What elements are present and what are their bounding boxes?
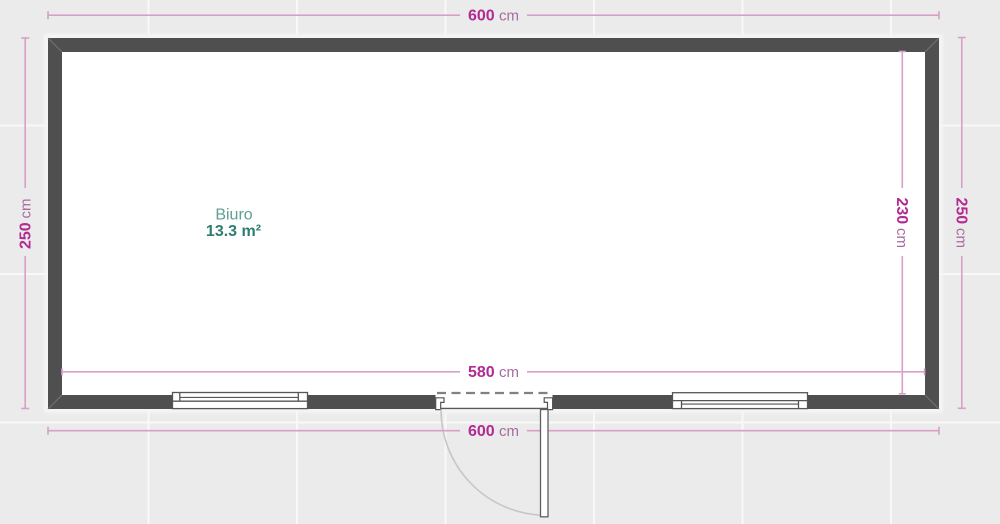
svg-text:250: 250 (18, 222, 35, 249)
svg-text:600: 600 (468, 423, 495, 440)
svg-text:cm: cm (499, 423, 519, 440)
svg-text:580: 580 (468, 364, 495, 381)
svg-text:cm: cm (499, 364, 519, 381)
svg-text:cm: cm (499, 8, 519, 25)
svg-text:230: 230 (893, 198, 910, 225)
svg-text:cm: cm (953, 228, 970, 248)
svg-text:Biuro: Biuro (215, 207, 252, 224)
svg-text:cm: cm (18, 199, 35, 219)
svg-text:13.3 m²: 13.3 m² (206, 223, 261, 240)
svg-text:cm: cm (893, 228, 910, 248)
svg-text:600: 600 (468, 8, 495, 25)
svg-text:250: 250 (953, 198, 970, 225)
